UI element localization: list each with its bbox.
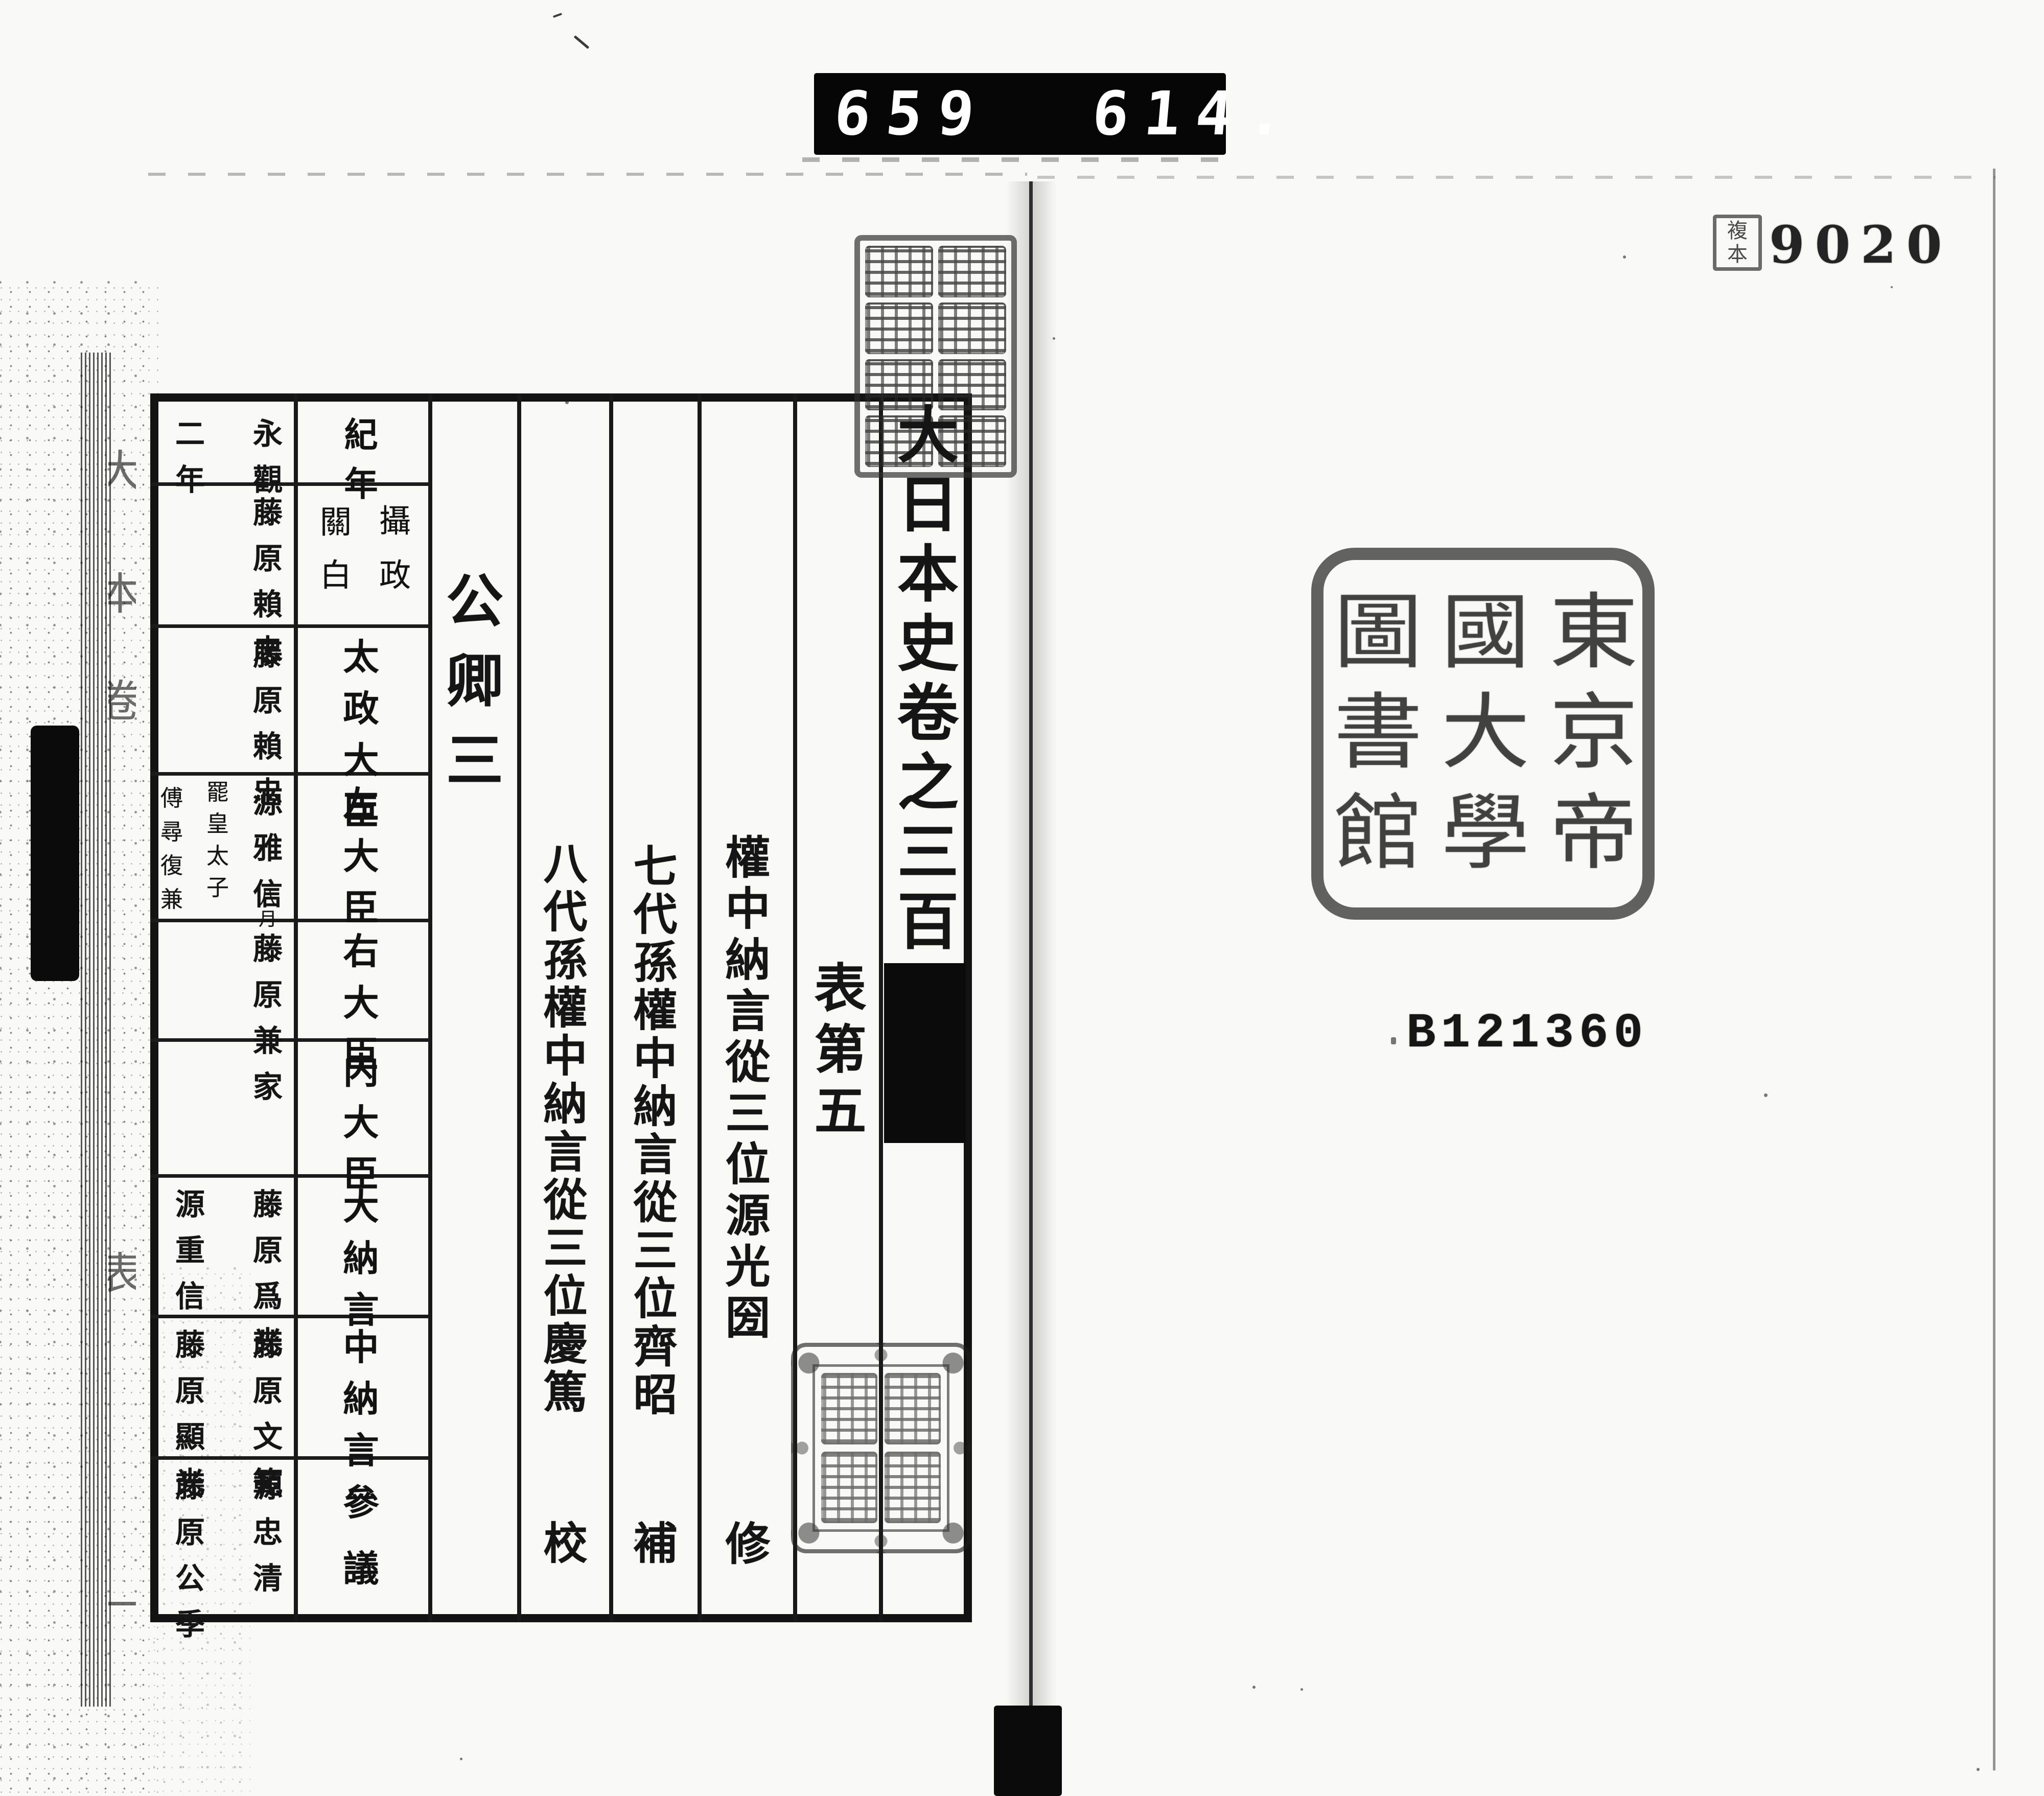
editor-role: 補 <box>629 1520 673 1564</box>
entry-char: 藤 <box>253 488 283 531</box>
entry-char: 原 <box>175 1367 205 1410</box>
ornate-seal-glyphs <box>812 1364 949 1532</box>
row-entry-column: 藤原公季 <box>173 1462 207 1643</box>
column-rule <box>428 393 432 1622</box>
library-seal-char: 帝 <box>1549 793 1638 875</box>
seal-glyph-block <box>885 1373 941 1444</box>
library-seal-char: 圖 <box>1334 592 1423 674</box>
counter-right-digits: 614. <box>1089 73 1303 155</box>
row-entry-column: 源忠清 <box>250 1462 285 1597</box>
entry-char: 源 <box>175 1180 205 1223</box>
chapter-heading: 公卿三 <box>440 571 498 810</box>
dust-dot <box>1053 337 1055 340</box>
entry-char: 信 <box>175 1272 205 1315</box>
dust-dot <box>1252 1686 1256 1689</box>
row-header-subcolumn: 攝政 <box>375 486 415 604</box>
dust-dot <box>1623 255 1626 259</box>
entry-char: 藤 <box>175 1321 205 1364</box>
header-char: 大 <box>343 1094 379 1146</box>
entry-char: 原 <box>253 1226 283 1269</box>
entry-char: 原 <box>253 971 283 1014</box>
seal-glyph-block <box>821 1452 877 1523</box>
row-header-cell: 大納言 <box>298 1178 424 1305</box>
library-seal-column: 圖書館 <box>1330 573 1427 894</box>
accession-number: B121360 <box>1406 1006 1648 1061</box>
header-char: 白 <box>320 549 352 595</box>
entry-char: 藤 <box>253 631 283 673</box>
note-char: 皇 <box>206 808 229 840</box>
entry-char: 重 <box>175 1226 205 1269</box>
dust-dot <box>1891 286 1893 288</box>
row-header-cell: 右大臣 <box>298 923 424 1029</box>
row-header-cell: 内大臣 <box>298 1042 424 1165</box>
note-char: 復 <box>160 849 183 883</box>
note-char: 兼 <box>160 883 183 917</box>
note-char: 太 <box>206 841 229 872</box>
row-header-cell: 中納言 <box>298 1319 424 1447</box>
header-char: 大 <box>343 974 379 1026</box>
header-char: 納 <box>343 1370 379 1422</box>
stray-mark-small <box>553 13 562 18</box>
gutter-fold-line <box>1029 181 1033 1796</box>
row-rule <box>150 919 430 922</box>
editor-column: 八代孫權中納言從三位慶篤 <box>539 841 583 1417</box>
fore-edge-streak-band <box>81 353 112 1707</box>
spine-char: 本 <box>108 572 136 616</box>
seal-glyph-block <box>885 1452 941 1523</box>
spine-char: 表 <box>108 1252 136 1296</box>
entry-char: 原 <box>253 677 283 719</box>
library-seal-char: 京 <box>1549 692 1638 775</box>
row-rule <box>150 1315 430 1318</box>
row-header-cell: 太政大臣 <box>298 628 424 763</box>
row-note-column: 八月 <box>254 888 281 930</box>
row-rule <box>150 772 430 776</box>
spine-char-glyph: 卷 <box>108 680 136 724</box>
stray-mark <box>574 35 590 49</box>
copy-stamp-char-2: 本 <box>1727 244 1748 265</box>
column-rule <box>294 393 298 1622</box>
entry-char: 文 <box>253 1413 283 1456</box>
row-note-column: 傅尋復兼 <box>158 782 185 917</box>
editor-column: 七代孫權中納言從三位齊昭 <box>629 843 673 1419</box>
entry-char: 原 <box>253 534 283 577</box>
entry-char: 雅 <box>253 824 283 867</box>
dust-dot <box>1977 1768 1980 1771</box>
editor-column: 權中納言從三位源光圀 <box>721 834 765 1345</box>
header-char: 納 <box>343 1230 379 1281</box>
spine-char-glyph: 一 <box>108 1584 136 1628</box>
library-seal-column: 國大學 <box>1437 573 1534 894</box>
spine-char-glyph: 本 <box>108 572 136 616</box>
copy-number: 9020 <box>1769 215 1952 275</box>
row-entry-column: 藤原兼家 <box>250 925 285 1106</box>
gutter-bottom-blotch <box>994 1706 1062 1796</box>
entry-char: 年 <box>175 456 205 499</box>
header-char: 議 <box>343 1540 379 1592</box>
row-entry-column: 二年 <box>173 410 207 499</box>
university-library-seal: 東京帝國大學圖書館 <box>1311 548 1655 920</box>
header-char: 政 <box>379 549 411 595</box>
library-seal-char: 書 <box>1334 692 1423 775</box>
fore-edge-blotch <box>31 726 79 981</box>
header-char: 紀 <box>344 408 378 457</box>
header-char: 大 <box>343 1178 379 1230</box>
row-header-subcolumn: 關白 <box>315 488 356 603</box>
note-char: 子 <box>206 872 229 904</box>
row-rule <box>150 624 430 628</box>
entry-char: 永 <box>253 410 283 453</box>
page-top-edge-right <box>1037 176 1995 179</box>
spine-char: 大 <box>108 450 136 494</box>
spine-char-glyph: 大 <box>108 450 136 494</box>
column-rule <box>517 393 521 1622</box>
row-rule <box>150 1038 430 1042</box>
entry-char: 藤 <box>253 925 283 968</box>
entry-char: 源 <box>253 1462 283 1505</box>
entry-char: 家 <box>253 1063 283 1106</box>
row-rule <box>150 1174 430 1178</box>
entry-char: 顯 <box>175 1413 205 1456</box>
page-right-edge <box>1993 169 1995 1770</box>
note-char: 八 <box>259 888 277 909</box>
header-char: 大 <box>343 828 379 879</box>
library-seal-char: 東 <box>1549 592 1638 674</box>
entry-char: 公 <box>175 1554 205 1597</box>
library-seal-char: 館 <box>1334 793 1423 875</box>
dust-dot <box>1764 1093 1768 1097</box>
spine-char: 一 <box>108 1584 136 1628</box>
row-header-cell: 左大臣 <box>298 776 424 909</box>
volume-title: 大日本史卷之三百 <box>891 403 953 959</box>
ornate-library-seal <box>791 1343 971 1553</box>
copy-stamp: 複 本 <box>1713 215 1762 271</box>
row-header-cell: 參議 <box>298 1460 424 1605</box>
header-char: 太 <box>343 628 379 680</box>
dust-dot <box>460 1758 462 1760</box>
entry-char: 兼 <box>253 1017 283 1060</box>
header-char: 内 <box>343 1042 379 1094</box>
entry-char: 藤 <box>253 1321 283 1364</box>
seal-glyph-block <box>938 246 1006 297</box>
header-char: 關 <box>320 496 352 542</box>
entry-char: 二 <box>175 410 205 453</box>
seal-glyph-block <box>865 246 933 297</box>
header-char: 政 <box>343 680 379 732</box>
entry-char: 賴 <box>253 580 283 623</box>
header-char: 右 <box>343 923 379 974</box>
entry-char: 原 <box>175 1508 205 1551</box>
header-char: 左 <box>343 776 379 828</box>
counter-left-digits: 659 <box>831 73 993 155</box>
seal-glyph-block <box>821 1373 877 1444</box>
editor-role: 修 <box>721 1520 765 1565</box>
entry-char: 忠 <box>253 1508 283 1551</box>
library-seal-char: 大 <box>1441 692 1530 775</box>
seal-glyph-block <box>865 302 933 354</box>
entry-char: 原 <box>253 1367 283 1410</box>
entry-char: 源 <box>253 778 283 821</box>
library-seal-char: 國 <box>1441 592 1530 674</box>
section-title: 表第五 <box>809 961 861 1145</box>
header-char: 參 <box>343 1474 379 1526</box>
note-char: 傅 <box>160 782 183 815</box>
entry-char: 藤 <box>253 1180 283 1223</box>
row-note-column: 罷皇太子 <box>204 777 231 904</box>
page-top-edge-left <box>148 173 1027 176</box>
redaction-box <box>884 963 966 1143</box>
library-seal-column: 東京帝 <box>1545 573 1642 894</box>
entry-char: 清 <box>253 1554 283 1597</box>
note-char: 尋 <box>160 815 183 849</box>
header-char: 大 <box>343 732 379 783</box>
note-char: 罷 <box>206 777 229 808</box>
row-header-cell: 紀年 <box>298 408 424 473</box>
accession-lead-dot <box>1391 1037 1396 1044</box>
dust-dot <box>1300 1688 1303 1691</box>
library-seal-char: 學 <box>1441 793 1530 875</box>
column-rule <box>609 393 613 1622</box>
header-char: 攝 <box>379 495 411 541</box>
editor-role: 校 <box>539 1520 583 1564</box>
entry-char: 賴 <box>253 722 283 765</box>
microfilm-scan: 659 614. 大本卷表一 紀年永觀二年攝政關白藤原賴忠太政大臣藤原賴忠左大臣… <box>0 0 2044 1796</box>
film-edge-under-counter <box>802 157 1232 162</box>
entry-char: 藤 <box>175 1462 205 1505</box>
row-entry-column: 源重信 <box>173 1180 207 1315</box>
entry-char: 季 <box>175 1600 205 1643</box>
column-rule <box>698 393 702 1622</box>
entry-char: 爲 <box>253 1272 283 1315</box>
seal-glyph-block <box>938 302 1006 354</box>
film-counter: 659 614. <box>814 73 1226 155</box>
header-char: 中 <box>343 1319 379 1370</box>
spine-char: 卷 <box>108 680 136 724</box>
row-entry-column: 永觀 <box>250 410 285 499</box>
spine-char-glyph: 表 <box>108 1252 136 1296</box>
copy-stamp-char-1: 複 <box>1727 221 1748 241</box>
